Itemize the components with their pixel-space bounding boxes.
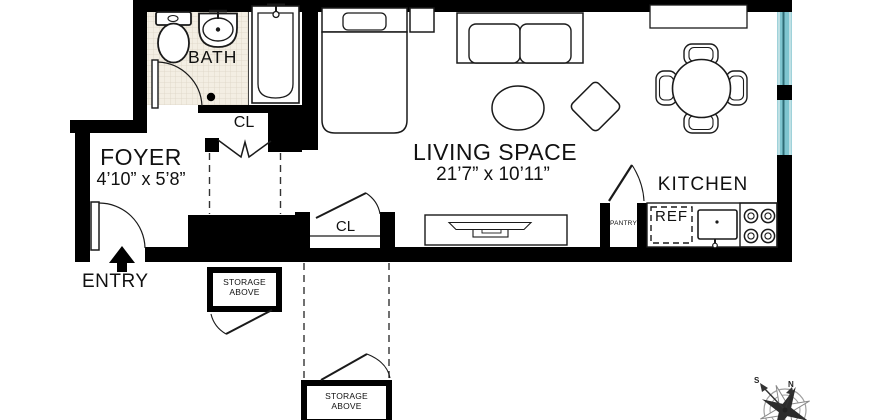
bathroom-sink-icon — [199, 11, 237, 47]
storage-1-line-1: STORAGE — [207, 277, 282, 287]
bathtub-icon — [252, 5, 299, 103]
floor-plan-drawing — [0, 0, 870, 420]
storage-door — [321, 354, 367, 380]
storage-2-line-1: STORAGE — [301, 391, 392, 401]
compass-north-label: N — [788, 381, 794, 389]
closet-bifold-doors — [218, 140, 271, 157]
toilet-icon — [156, 12, 191, 63]
coffee-table-icon — [492, 86, 544, 130]
bed-icon — [322, 8, 407, 133]
tv-console-icon — [425, 215, 567, 245]
refrigerator-label: REF — [649, 209, 694, 225]
compass-rose-icon — [752, 377, 819, 420]
foyer-dimensions: 4’10” x 5’8” — [83, 170, 199, 189]
living-space-dimensions: 21’7” x 10’11” — [413, 165, 573, 185]
nightstand-icon — [410, 8, 434, 32]
storage-above-label-2: STORAGE ABOVE — [301, 391, 392, 411]
window-mullion — [777, 85, 792, 100]
floor-plan: BATH CL FOYER 4’10” x 5’8” ENTRY LIVING … — [0, 0, 870, 420]
pantry-label: PANTRY — [605, 221, 642, 228]
entry-arrow-icon — [109, 246, 135, 272]
compass-south-label: S — [754, 377, 759, 385]
side-table-icon — [569, 80, 621, 132]
dining-set — [656, 44, 747, 133]
kitchen-label: KITCHEN — [643, 175, 763, 195]
storage-1-line-2: ABOVE — [207, 287, 282, 297]
bath-label: BATH — [188, 48, 237, 66]
door-stop-dot — [207, 93, 215, 101]
storage-door — [226, 310, 272, 334]
storage-above-label-1: STORAGE ABOVE — [207, 277, 282, 297]
closet-top-label: CL — [221, 115, 267, 132]
entry-door — [91, 202, 145, 250]
living-space-label: LIVING SPACE — [413, 140, 573, 164]
dining-table-icon — [673, 60, 731, 118]
storage-footprint-lines — [210, 153, 390, 379]
console-table-icon — [650, 5, 747, 28]
tv-icon — [449, 223, 531, 230]
storage-2-line-2: ABOVE — [301, 401, 392, 411]
pantry-door — [609, 165, 644, 201]
entry-label: ENTRY — [82, 272, 149, 292]
sofa-icon — [457, 13, 583, 63]
closet-bottom-label: CL — [323, 219, 368, 235]
foyer-label: FOYER — [83, 145, 199, 169]
